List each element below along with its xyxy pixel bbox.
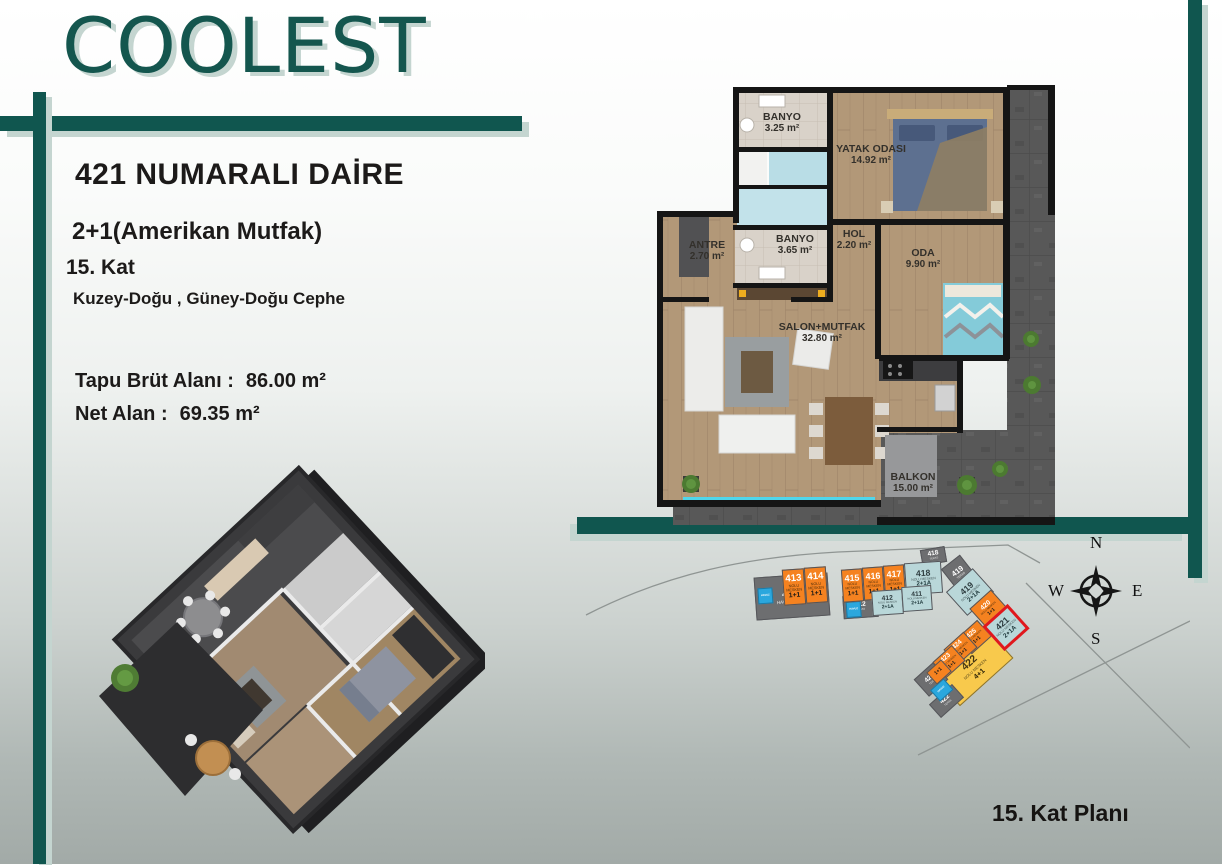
compass-north-label: N bbox=[1090, 533, 1102, 553]
iso-plan-graphic bbox=[85, 452, 485, 860]
site-block-mesken-411: 411NOLU MESKEN2+1A bbox=[901, 585, 933, 612]
compass-east-label: E bbox=[1132, 581, 1142, 601]
room-label-oda: ODA9.90 m² bbox=[906, 247, 940, 271]
site-block-mesken-412: 412NOLU MESKEN2+1A bbox=[871, 589, 904, 616]
net-area-value: 69.35 m² bbox=[180, 403, 260, 425]
apartment-layout-type: 2+1(Amerikan Mutfak) bbox=[72, 218, 322, 246]
room-label-banyo: BANYO3.25 m² bbox=[763, 111, 801, 135]
pool-square: HAVUZ bbox=[846, 601, 862, 618]
site-plan-caption: 15. Kat Planı bbox=[992, 800, 1129, 827]
apartment-title: 421 NUMARALI DAİRE bbox=[75, 158, 404, 192]
gross-area-value: 86.00 m² bbox=[246, 370, 326, 392]
room-label-salon-mutfak: SALON+MUTFAK32.80 m² bbox=[779, 321, 866, 345]
room-label-hol: HOL2.20 m² bbox=[837, 228, 871, 252]
floor-plan-2d: BANYO3.25 m²YATAK ODASI14.92 m²ANTRE2.70… bbox=[655, 85, 1055, 525]
site-block-mesken-414: 414NOLU MESKEN1+1 bbox=[804, 566, 828, 603]
net-area-label: Net Alan : bbox=[75, 403, 168, 425]
room-label-antre: ANTRE2.70 m² bbox=[689, 239, 725, 263]
logo-underline-bar bbox=[0, 116, 522, 131]
floor-plan-3d bbox=[85, 452, 485, 860]
compass-star-icon bbox=[1070, 565, 1122, 617]
site-block-mesken-415: 415NOLU MESKEN1+1 bbox=[841, 568, 864, 602]
room-label-banyo: BANYO3.65 m² bbox=[776, 233, 814, 257]
net-area-line: Net Alan :69.35 m² bbox=[75, 403, 260, 426]
compass-south-label: S bbox=[1091, 629, 1100, 649]
room-label-yatak-odasi: YATAK ODASI14.92 m² bbox=[836, 143, 906, 167]
gross-area-line: Tapu Brüt Alanı :86.00 m² bbox=[75, 370, 326, 393]
left-vertical-bar bbox=[33, 92, 46, 864]
apartment-facade: Kuzey-Doğu , Güney-Doğu Cephe bbox=[73, 289, 345, 309]
brand-logo: COOLEST bbox=[62, 6, 427, 86]
compass-rose: N S W E bbox=[1048, 533, 1143, 651]
apartment-floor: 15. Kat bbox=[66, 256, 135, 280]
room-label-balkon: BALKON15.00 m² bbox=[891, 471, 936, 495]
right-vertical-bar bbox=[1188, 0, 1202, 578]
pool-square: HAVUZ bbox=[757, 588, 773, 605]
site-block-mesken-413: 413NOLU MESKEN1+1 bbox=[782, 568, 806, 605]
gross-area-label: Tapu Brüt Alanı : bbox=[75, 370, 234, 392]
compass-west-label: W bbox=[1048, 581, 1064, 601]
